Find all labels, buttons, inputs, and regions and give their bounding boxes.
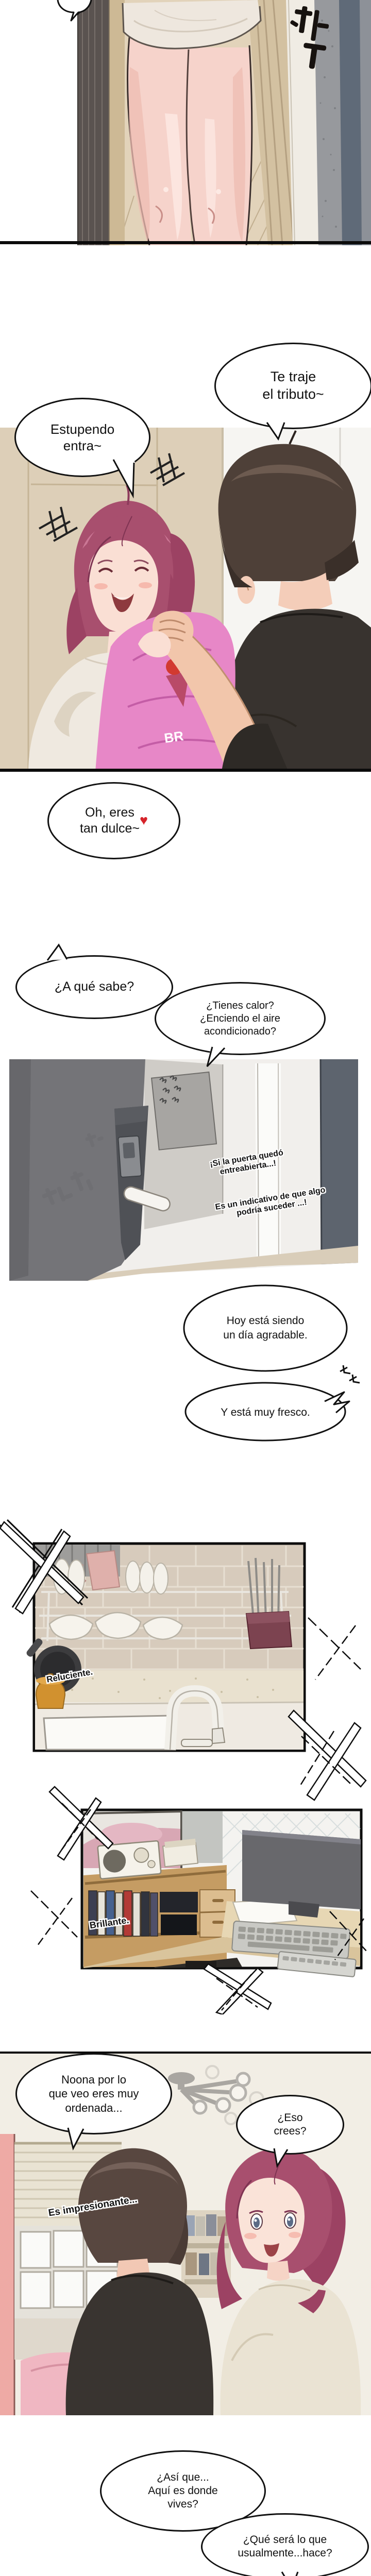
svg-text:BR: BR: [163, 728, 185, 746]
svg-text:Hoy está siendo: Hoy está siendo: [227, 1315, 305, 1327]
svg-text:Y está muy fresco.: Y está muy fresco.: [221, 1406, 310, 1418]
svg-text:un día agradable.: un día agradable.: [223, 1329, 307, 1341]
